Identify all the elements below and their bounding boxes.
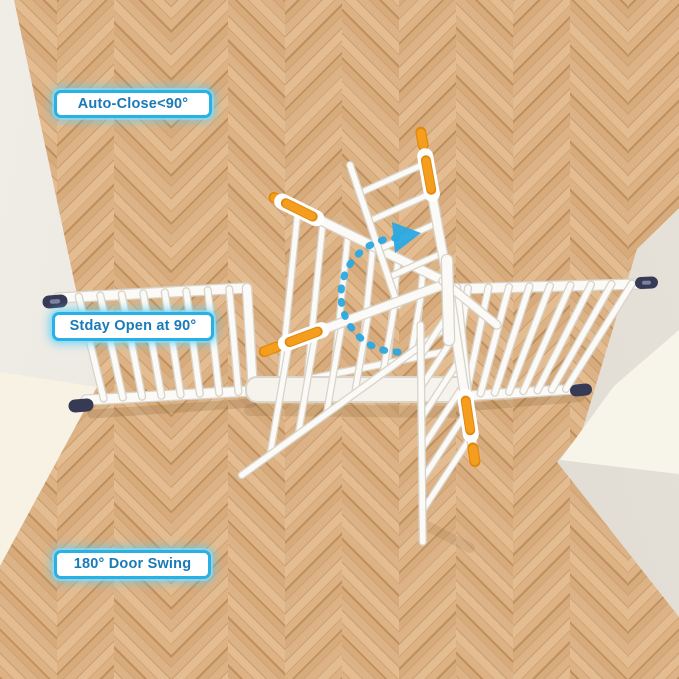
auto-close-label: Auto-Close<90° — [54, 90, 212, 118]
stay-open-label: Stday Open at 90° — [52, 312, 214, 341]
door-swing-label: 180° Door Swing — [54, 550, 211, 579]
product-image: Auto-Close<90° Stday Open at 90° 180° Do… — [0, 0, 679, 679]
